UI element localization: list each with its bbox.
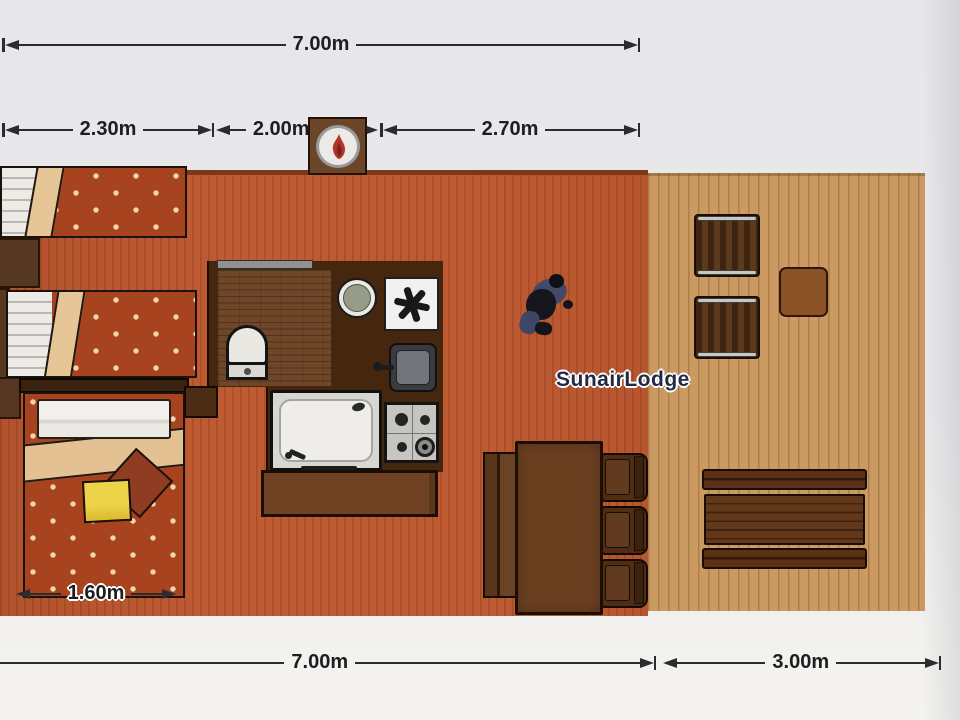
person-figure: [518, 274, 576, 340]
dimension-label: 2.30m: [73, 120, 144, 138]
burner: [395, 413, 408, 426]
arrow-left-icon: [16, 589, 30, 599]
dimension-line: [356, 44, 623, 47]
hob-grid: [412, 405, 414, 460]
chair-seat: [605, 512, 630, 548]
chair-rail: [697, 352, 757, 357]
arrow-left-icon: [5, 40, 19, 50]
dimension-line: [230, 129, 246, 132]
toilet: [226, 325, 268, 365]
chair-back: [634, 456, 644, 499]
deck-chair: [694, 214, 760, 277]
dimension-top-total: 7.00m: [2, 36, 640, 54]
dining-chair: [601, 559, 648, 608]
single-bed-1: [0, 166, 187, 238]
dimension-line: [836, 662, 924, 665]
picnic-table: [704, 494, 865, 545]
lodge-name-label: SunairLodge: [556, 368, 690, 392]
dimension-tick: [212, 123, 215, 137]
dimension-line: [0, 662, 284, 665]
dimension-label: 7.00m: [284, 653, 355, 671]
dining-chair: [601, 506, 648, 555]
dining-table: [515, 441, 603, 615]
dining-bench: [483, 452, 517, 598]
toilet-tank: [226, 362, 268, 380]
throw-pillow-yellow: [82, 479, 132, 523]
arrow-right-icon: [162, 589, 176, 599]
heater-dial: [316, 125, 360, 168]
arrow-left-icon: [5, 125, 19, 135]
bathroom-window: [217, 260, 313, 269]
dimension-label: 3.00m: [765, 653, 836, 671]
person-arm: [563, 300, 573, 309]
dimension-label: 2.00m: [246, 120, 317, 138]
dimension-line: [545, 129, 623, 132]
dimension-seg-bedroom: 2.30m: [2, 121, 214, 139]
washbasin-bowl: [343, 284, 371, 312]
bed-pillow: [37, 399, 171, 439]
person-head: [549, 274, 564, 288]
double-bed: [23, 392, 185, 598]
arrow-left-icon: [383, 125, 397, 135]
dimension-bed-width: 1.60m: [16, 585, 176, 603]
chair-back: [634, 562, 644, 605]
wall-stub: [0, 238, 40, 288]
dimension-line: [355, 662, 639, 665]
arrow-right-icon: [640, 658, 654, 668]
wall-stub: [0, 377, 21, 419]
burner: [420, 415, 430, 425]
arrow-right-icon: [624, 40, 638, 50]
sink-basin: [396, 350, 430, 385]
dimension-bottom-lodge: 7.00m: [0, 654, 656, 672]
burner-large: [415, 437, 435, 457]
dimension-line: [143, 129, 197, 132]
gas-heater: [308, 117, 367, 175]
burner: [397, 442, 407, 452]
gas-hob: [384, 402, 439, 463]
flame-icon: [327, 133, 351, 161]
deck-chair: [694, 296, 760, 359]
paper-shadow: [922, 0, 960, 720]
dining-chair: [601, 453, 648, 502]
dimension-label: 2.70m: [475, 120, 546, 138]
arrow-right-icon: [624, 125, 638, 135]
chair-seat: [605, 459, 630, 495]
deck-side-table: [779, 267, 828, 317]
washbasin: [337, 278, 377, 318]
bed-cover: [68, 292, 195, 376]
dimension-label: 1.60m: [61, 584, 132, 602]
faucet-knob: [373, 362, 382, 371]
double-bed-headboard: [19, 378, 189, 393]
shower-handle-knob: [285, 452, 292, 459]
extractor-fan: [384, 277, 439, 331]
chair-rail: [697, 270, 757, 275]
nightstand: [184, 386, 218, 418]
picnic-bench: [702, 548, 867, 569]
dimension-bottom-deck: 3.00m: [663, 654, 941, 672]
flush-button: [244, 368, 251, 375]
dimension-line: [30, 593, 61, 596]
dimension-line: [19, 129, 73, 132]
kitchen-sink: [389, 343, 437, 392]
shower-step: [301, 466, 357, 470]
arrow-right-icon: [925, 658, 939, 668]
dimension-tick: [939, 656, 942, 670]
bed-cover: [48, 168, 185, 236]
chair-seat: [605, 565, 630, 601]
chair-back: [634, 509, 644, 552]
single-bed-2: [6, 290, 197, 378]
dimension-tick: [638, 123, 641, 137]
dimension-line: [397, 129, 475, 132]
person-foot: [534, 321, 553, 336]
floor-plan-photo: 7.00m 2.30m 2.00m 2.70m: [0, 0, 960, 720]
dimension-line: [19, 44, 286, 47]
picnic-table-set: [702, 469, 867, 569]
chair-rail: [697, 298, 757, 303]
arrow-left-icon: [216, 125, 230, 135]
chair-rail: [697, 216, 757, 221]
shower-tray: [270, 390, 382, 471]
arrow-left-icon: [663, 658, 677, 668]
kitchen-cabinet: [261, 470, 438, 517]
arrow-right-icon: [198, 125, 212, 135]
dimension-tick: [654, 656, 657, 670]
dimension-seg-living: 2.70m: [380, 121, 640, 139]
dimension-line: [677, 662, 765, 665]
dimension-line: [131, 593, 162, 596]
burner-center: [422, 444, 428, 450]
dimension-tick: [638, 38, 641, 52]
picnic-bench: [702, 469, 867, 490]
dimension-label: 7.00m: [286, 35, 357, 53]
